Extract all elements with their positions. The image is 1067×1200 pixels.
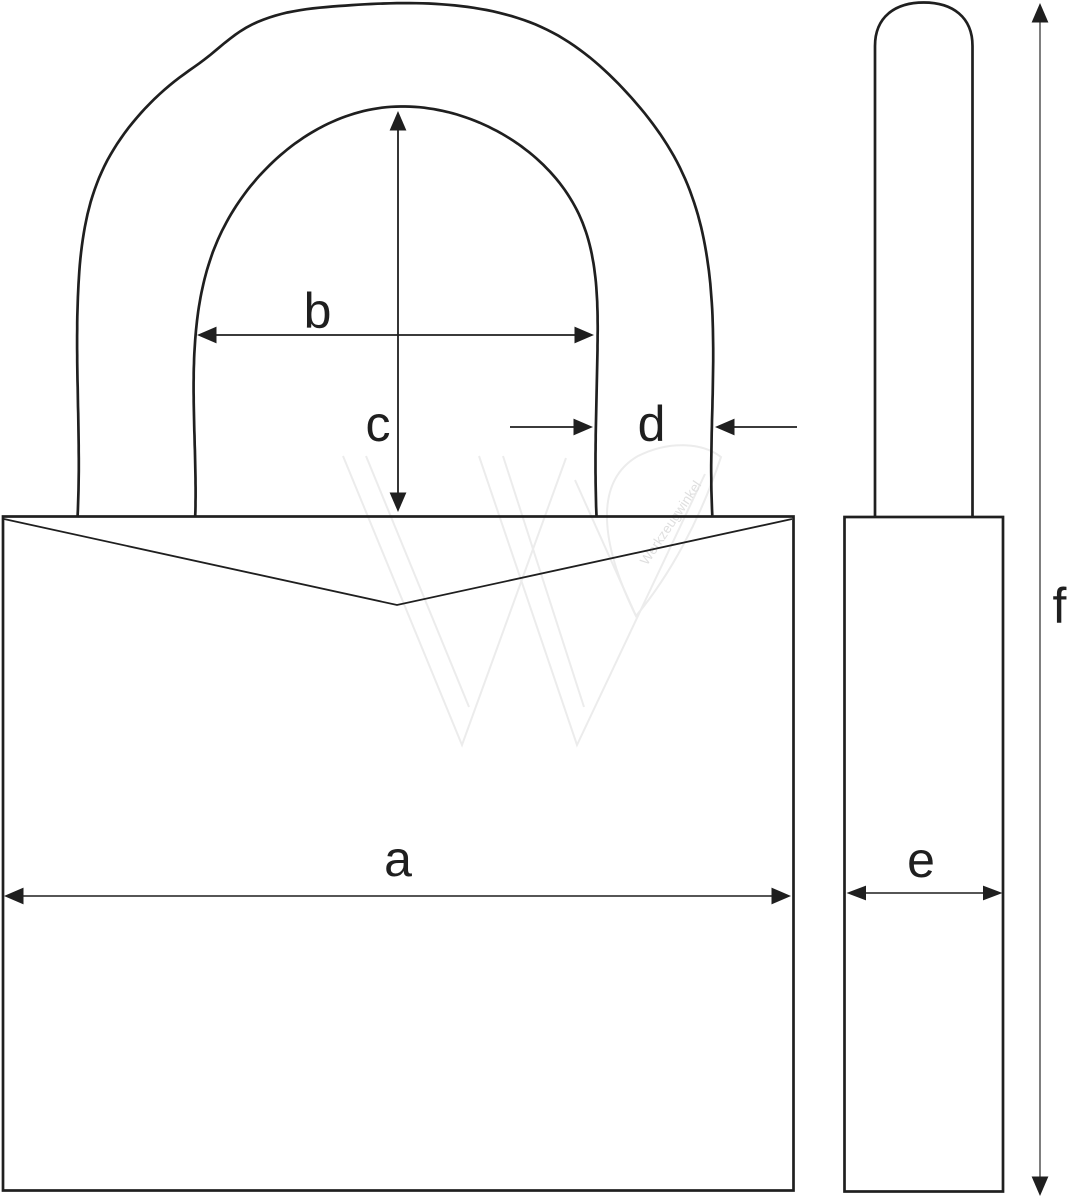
svg-text:a: a <box>384 831 412 887</box>
svg-text:b: b <box>304 283 332 339</box>
svg-text:d: d <box>638 396 666 452</box>
svg-text:f: f <box>1053 578 1067 634</box>
svg-text:c: c <box>366 396 391 452</box>
svg-text:e: e <box>907 832 935 888</box>
